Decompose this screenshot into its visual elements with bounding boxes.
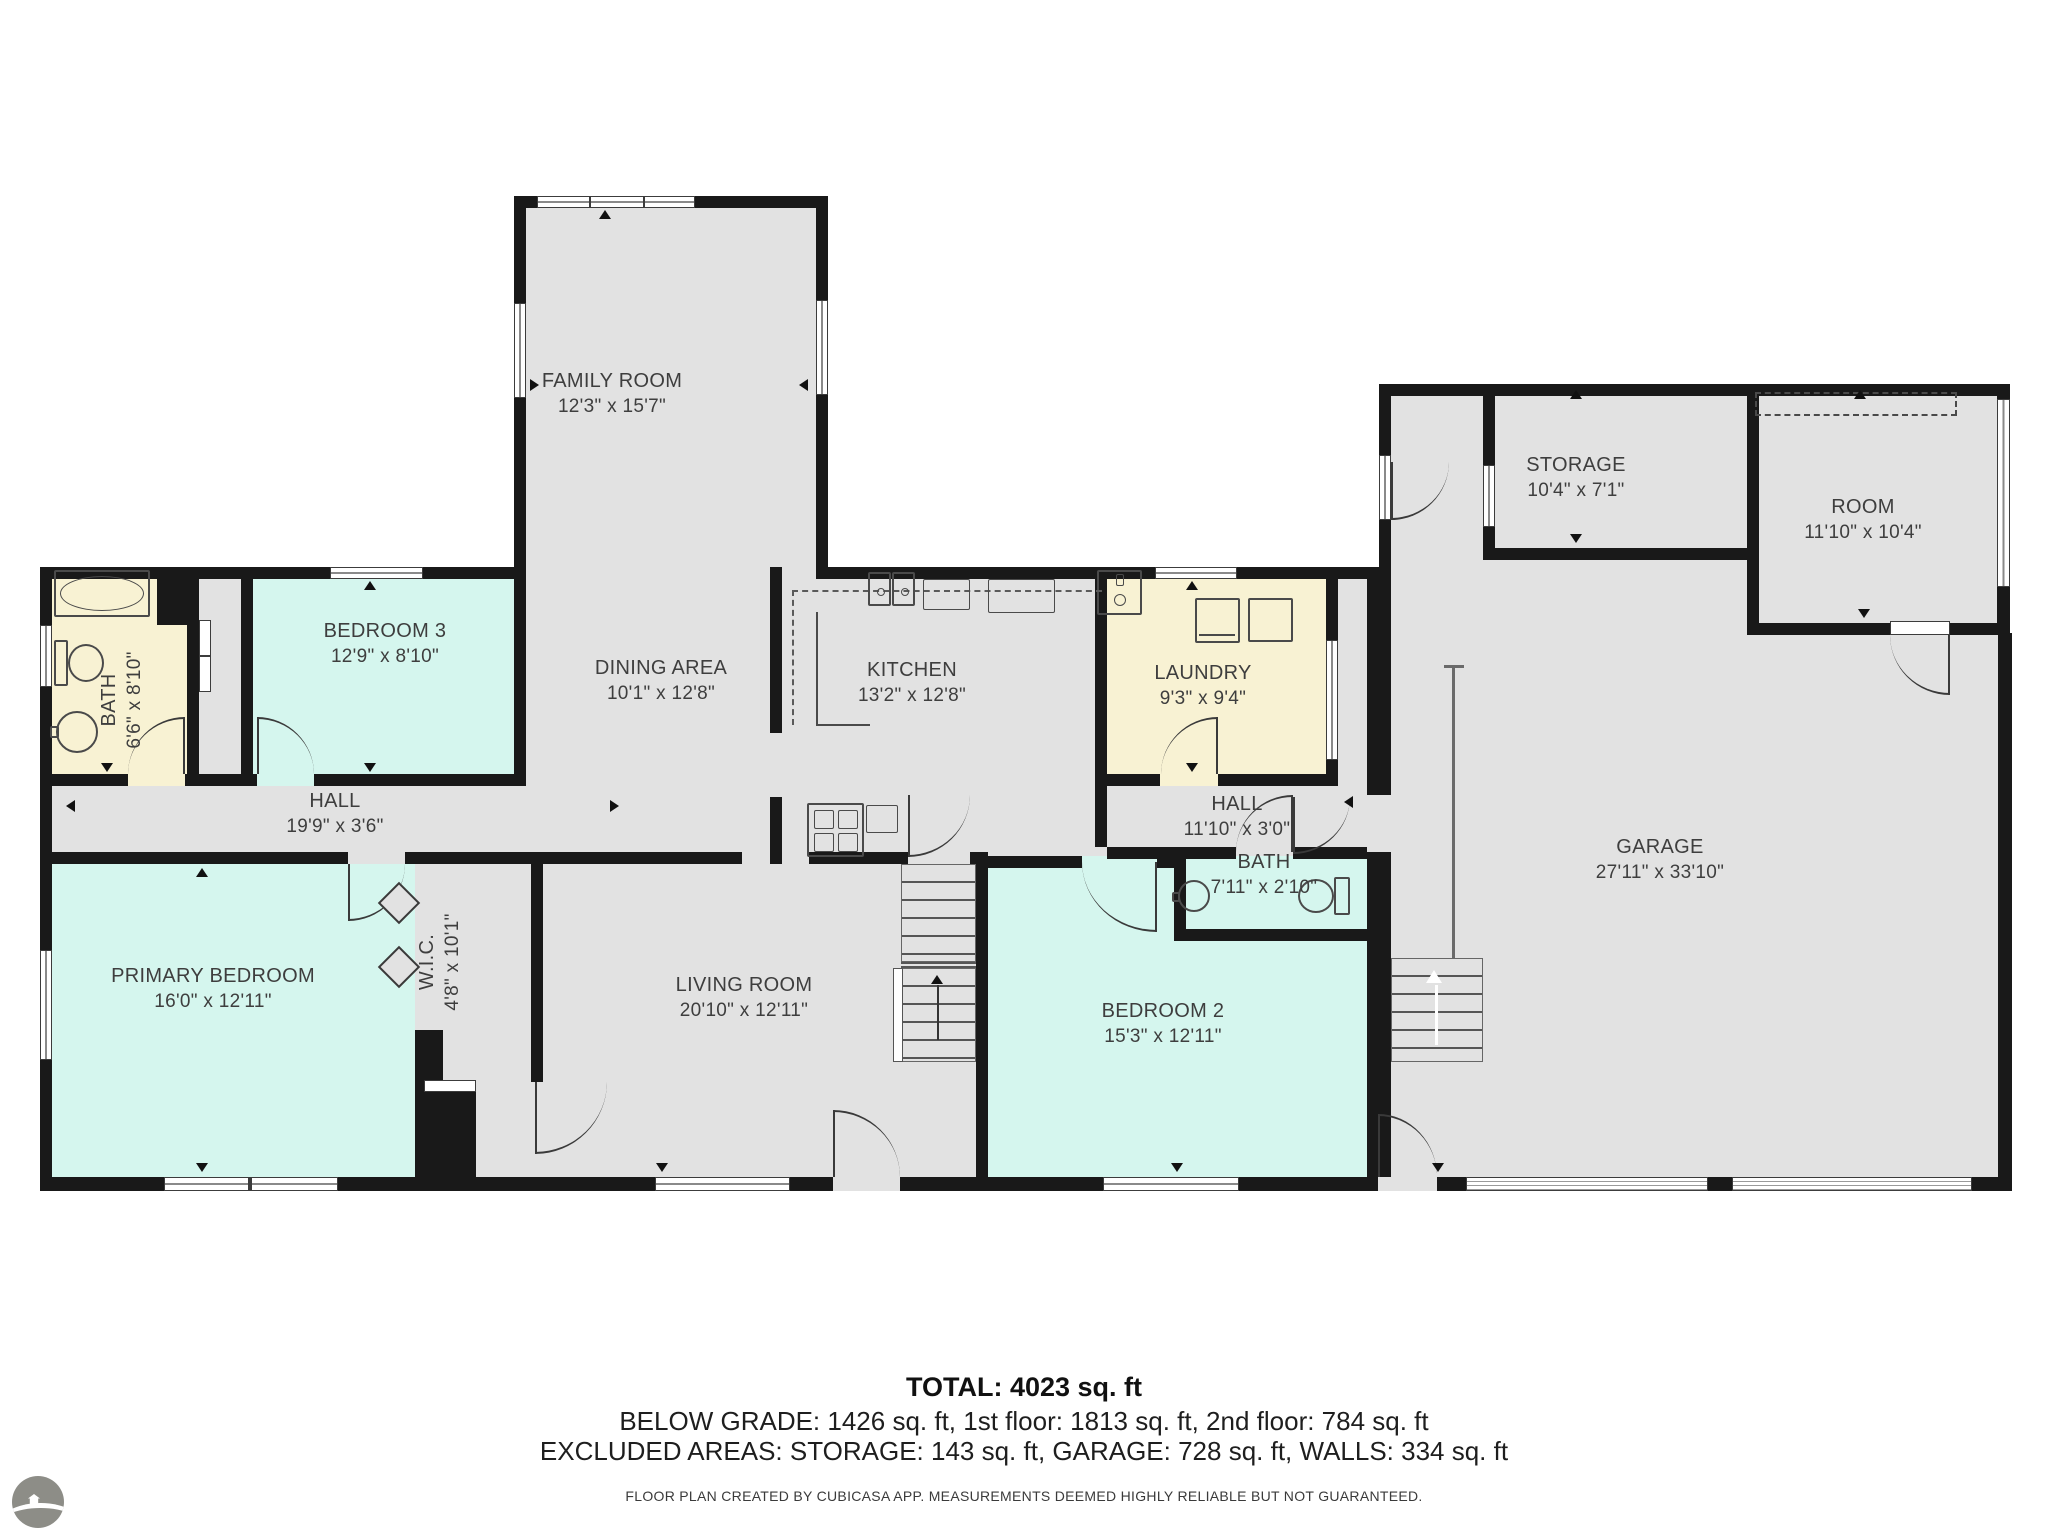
laundry-sink-drain — [1114, 594, 1126, 606]
dimension-arrow — [196, 1163, 208, 1172]
room-dims: 19'9" x 3'6" — [286, 814, 383, 840]
window — [330, 567, 423, 579]
kitchen-sink — [892, 572, 915, 606]
wall — [790, 1177, 833, 1191]
bathtub — [54, 570, 150, 617]
stove — [807, 803, 864, 857]
room-name: ROOM — [1804, 494, 1922, 520]
dimension-arrow — [1854, 390, 1866, 399]
stair-direction-line — [937, 985, 939, 1040]
room-name: PRIMARY BEDROOM — [111, 963, 315, 989]
dimension-arrow — [1186, 763, 1198, 772]
burner — [838, 810, 858, 829]
wall — [988, 856, 1082, 868]
wall — [241, 567, 253, 786]
dimension-arrow — [599, 210, 611, 219]
dimension-arrow — [66, 800, 75, 812]
door-opening — [1379, 455, 1391, 520]
kitchen-cabinet — [923, 579, 970, 610]
sink-tap — [50, 726, 59, 738]
burner — [814, 833, 834, 852]
window — [816, 300, 828, 395]
garage-rail-tick — [1444, 665, 1464, 668]
floor-areas-text: BELOW GRADE: 1426 sq. ft, 1st floor: 181… — [0, 1406, 2048, 1437]
stair-direction-line — [1435, 985, 1438, 1045]
window-mullion — [589, 196, 591, 208]
kitchen-counter — [866, 805, 898, 833]
room-dims: 11'10" x 10'4" — [1804, 520, 1922, 546]
room-name: BEDROOM 2 — [1102, 998, 1225, 1024]
window — [537, 196, 695, 208]
window — [1155, 567, 1237, 579]
door-opening — [1483, 465, 1495, 527]
wall — [1095, 774, 1160, 786]
garage-door — [1732, 1177, 1972, 1191]
dimension-arrow — [1186, 581, 1198, 590]
total-area-text: TOTAL: 4023 sq. ft — [0, 1372, 2048, 1403]
room-dims: 10'1" x 12'8" — [595, 681, 727, 707]
door-opening — [1367, 795, 1391, 852]
dimension-arrow — [101, 763, 113, 772]
wall — [1367, 852, 1391, 941]
burner — [838, 833, 858, 852]
stair-up-arrow — [931, 975, 943, 984]
wall — [1747, 623, 1890, 635]
wall — [40, 852, 348, 864]
room-dims: 20'10" x 12'11" — [676, 998, 813, 1024]
window-mullion — [643, 196, 645, 208]
window — [40, 625, 52, 687]
wall — [1095, 786, 1107, 847]
kitchen-counter-edge — [816, 724, 870, 726]
wall — [816, 196, 828, 300]
wall — [405, 852, 742, 864]
room-label-kitchen: KITCHEN 13'2" x 12'8" — [858, 657, 966, 709]
wall — [157, 567, 193, 625]
room-label-primary: PRIMARY BEDROOM 16'0" x 12'11" — [111, 963, 315, 1015]
wall — [1367, 567, 1391, 795]
wall — [314, 774, 526, 786]
wall — [770, 567, 782, 733]
dimension-arrow — [1344, 796, 1353, 808]
round-sink — [1178, 880, 1210, 912]
wall — [185, 774, 257, 786]
room-name: LAUNDRY — [1154, 660, 1251, 686]
room-label-bedroom3: BEDROOM 3 12'9" x 8'10" — [324, 618, 447, 670]
dryer — [1248, 598, 1293, 642]
room-label-dining: DINING AREA 10'1" x 12'8" — [595, 655, 727, 707]
bathtub-basin — [60, 576, 144, 611]
room-label-storage: STORAGE 10'4" x 7'1" — [1526, 452, 1626, 504]
window — [1997, 399, 2010, 587]
wall — [1157, 856, 1174, 868]
wall — [40, 1177, 164, 1191]
garage-door — [1466, 1177, 1708, 1191]
wall — [514, 567, 526, 786]
kitchen-sink-drain — [901, 588, 909, 596]
room-label-family: FAMILY ROOM 12'3" x 15'7" — [542, 368, 682, 420]
toilet-tank — [1334, 877, 1350, 915]
wall — [40, 774, 128, 786]
room-dims: 11'10" x 3'0" — [1184, 817, 1291, 843]
wall — [1972, 1177, 2012, 1191]
wall — [531, 864, 543, 1082]
dimension-arrow — [364, 581, 376, 590]
wall — [1326, 760, 1338, 786]
room-dims: 27'11" x 33'10" — [1596, 860, 1724, 886]
room-dims: 9'3" x 9'4" — [1154, 686, 1251, 712]
dimension-arrow — [1570, 390, 1582, 399]
room-name: LIVING ROOM — [676, 972, 813, 998]
wall — [40, 567, 52, 625]
kitchen-cabinet — [988, 579, 1055, 613]
wall — [816, 567, 1112, 579]
wall — [423, 567, 526, 579]
wall — [1950, 623, 2010, 635]
kitchen-sink-drain — [877, 588, 885, 596]
room-dims: 4'8" x 10'1" — [440, 913, 466, 1010]
wall — [1437, 1177, 1466, 1191]
dimension-arrow — [1432, 1163, 1444, 1172]
toilet-tank — [54, 640, 68, 686]
wall — [415, 1080, 476, 1177]
room-label-hall1: HALL 19'9" x 3'6" — [286, 788, 383, 840]
washer — [1195, 598, 1240, 643]
room-name: HALL — [286, 788, 383, 814]
sink-tap — [1172, 892, 1180, 902]
dimension-arrow — [799, 379, 808, 391]
wall — [1483, 548, 1759, 560]
window — [514, 303, 526, 398]
room-label-garage: GARAGE 27'11" x 33'10" — [1596, 834, 1724, 886]
wall — [514, 196, 526, 303]
dimension-arrow — [1171, 1163, 1183, 1172]
wall — [1326, 567, 1338, 640]
wall — [1747, 384, 1759, 635]
room-name: FAMILY ROOM — [542, 368, 682, 394]
room-label-bedroom2: BEDROOM 2 15'3" x 12'11" — [1102, 998, 1225, 1050]
room-label-wic: W.I.C. 4'8" x 10'1" — [414, 913, 466, 1010]
wall — [900, 1177, 1103, 1191]
dimension-arrow — [610, 800, 619, 812]
door-leaf — [1890, 621, 1950, 635]
room-dims: 16'0" x 12'11" — [111, 989, 315, 1015]
room-name: STORAGE — [1526, 452, 1626, 478]
closet-slider — [199, 656, 211, 692]
window-mullion — [248, 1177, 252, 1191]
wall — [1379, 520, 1391, 567]
room-name: HALL — [1184, 791, 1291, 817]
room-dims: 13'2" x 12'8" — [858, 683, 966, 709]
logo-swoosh — [12, 1503, 64, 1528]
room-name: BEDROOM 3 — [324, 618, 447, 644]
room-dims: 6'6" x 8'10" — [122, 651, 148, 748]
room-dims: 10'4" x 7'1" — [1526, 478, 1626, 504]
dimension-arrow — [1858, 609, 1870, 618]
burner — [814, 810, 834, 829]
wall — [1237, 567, 1379, 579]
kitchen-counter-edge — [816, 612, 818, 726]
wall — [1708, 1177, 1732, 1191]
room-label-bath1: BATH 6'6" x 8'10" — [96, 651, 148, 748]
wall — [770, 797, 782, 864]
wall — [1483, 384, 1495, 465]
room-name: KITCHEN — [858, 657, 966, 683]
dimension-arrow — [1570, 534, 1582, 543]
wall — [1239, 1177, 1379, 1191]
room-name: W.I.C. — [414, 913, 440, 1010]
window — [655, 1177, 790, 1191]
washer-detail-line — [1199, 634, 1235, 636]
dimension-arrow — [196, 868, 208, 877]
kitchen-counter-dashed — [792, 590, 794, 725]
room-label-laundry: LAUNDRY 9'3" x 9'4" — [1154, 660, 1251, 712]
window — [1326, 640, 1338, 760]
room-label-hall2: HALL 11'10" x 3'0" — [1184, 791, 1291, 843]
wall — [514, 398, 526, 567]
dimension-arrow — [656, 1163, 668, 1172]
door-opening — [1378, 1177, 1437, 1191]
closet-slider — [199, 620, 211, 656]
room-name: DINING AREA — [595, 655, 727, 681]
room-name: GARAGE — [1596, 834, 1724, 860]
laundry-sink — [1097, 570, 1142, 615]
wall — [1379, 384, 1391, 455]
staircase-upper-flight — [901, 864, 976, 962]
dimension-arrow — [364, 763, 376, 772]
pedestal-sink — [56, 711, 98, 753]
wall — [970, 852, 988, 864]
dimension-arrow — [530, 379, 539, 391]
stair-up-arrow — [1426, 970, 1442, 983]
wall — [816, 395, 828, 567]
wall — [40, 1060, 52, 1191]
floor-plan: FAMILY ROOM 12'3" x 15'7" STORAGE 10'4" … — [0, 0, 2048, 1536]
window — [1103, 1177, 1239, 1191]
room-dims: 7'11" x 2'10" — [1211, 875, 1318, 901]
room-label-living: LIVING ROOM 20'10" x 12'11" — [676, 972, 813, 1024]
kitchen-sink — [868, 572, 891, 606]
room-dims: 12'9" x 8'10" — [324, 644, 447, 670]
window — [40, 950, 52, 1060]
garage-rail — [1452, 665, 1455, 958]
room-name: BATH — [1211, 849, 1318, 875]
wall — [1174, 929, 1367, 941]
room-dims: 12'3" x 15'7" — [542, 394, 682, 420]
wall — [695, 196, 828, 208]
wall — [1218, 774, 1338, 786]
room-name: BATH — [96, 651, 122, 748]
wic-opening — [424, 1080, 476, 1092]
wall — [976, 856, 988, 1177]
room-dims: 15'3" x 12'11" — [1102, 1024, 1225, 1050]
cubicasa-logo — [12, 1476, 64, 1528]
disclaimer-text: FLOOR PLAN CREATED BY CUBICASA APP. MEAS… — [0, 1488, 2048, 1504]
room-label-room: ROOM 11'10" x 10'4" — [1804, 494, 1922, 546]
stair-rail — [893, 968, 903, 1062]
wall — [338, 1177, 655, 1191]
room-label-bath2: BATH 7'11" x 2'10" — [1211, 849, 1318, 901]
excluded-areas-text: EXCLUDED AREAS: STORAGE: 143 sq. ft, GAR… — [0, 1436, 2048, 1467]
door-opening — [833, 1177, 900, 1191]
laundry-sink-tap — [1116, 574, 1124, 586]
wall — [1998, 633, 2012, 1191]
